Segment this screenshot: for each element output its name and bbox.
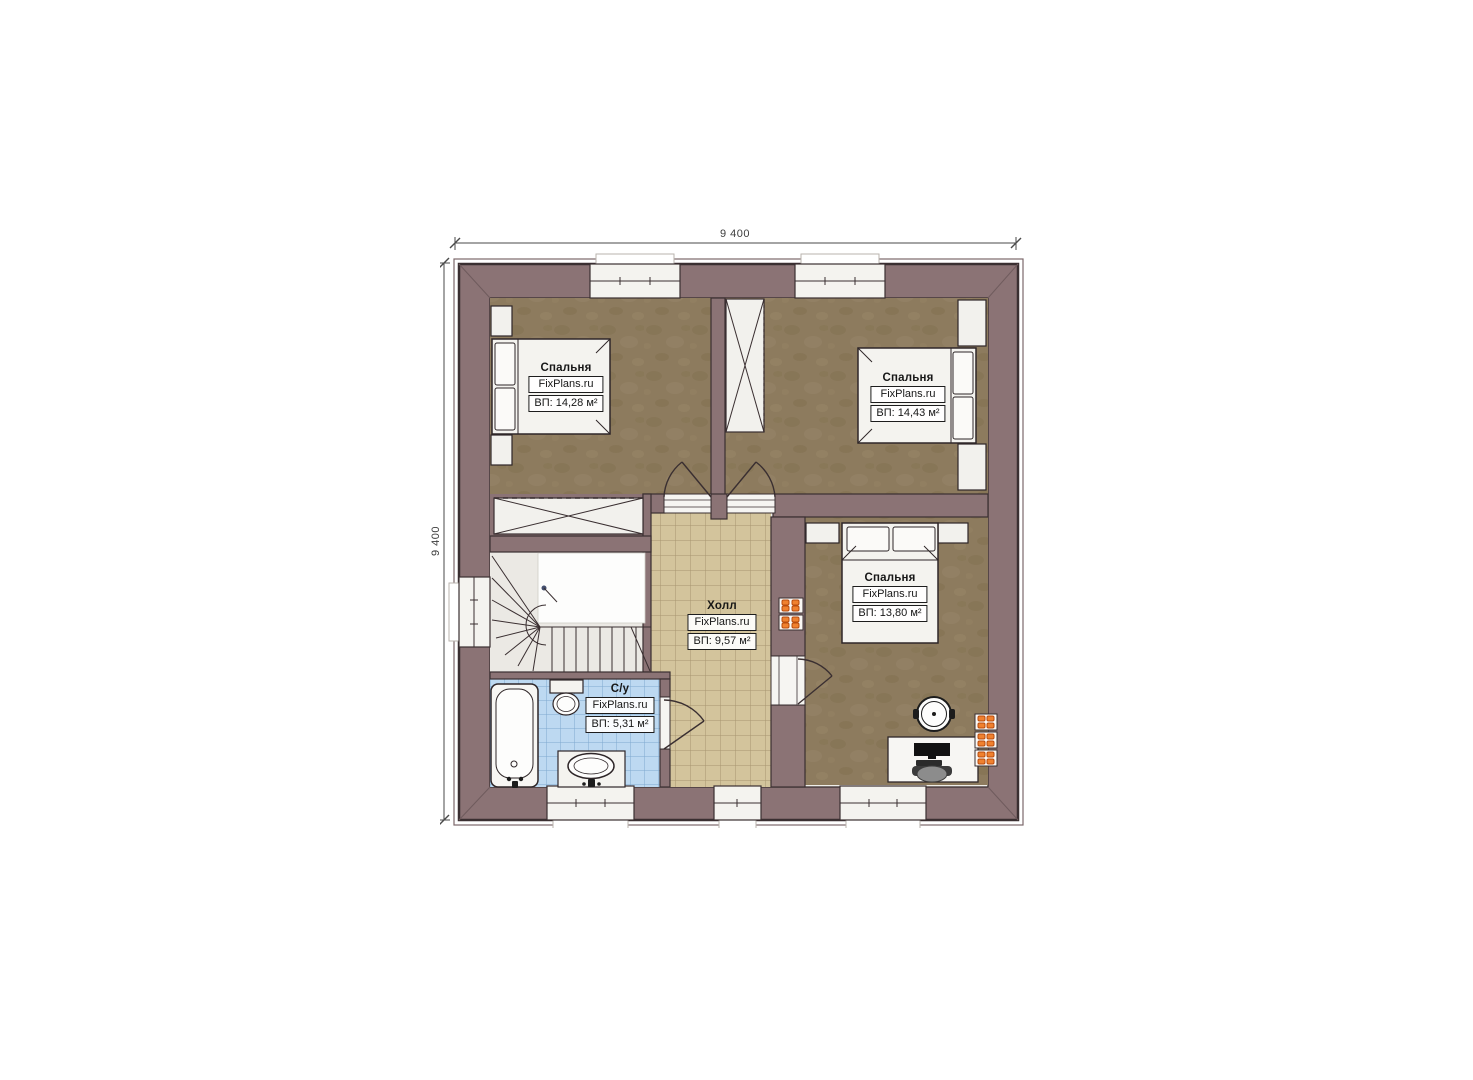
nightstand xyxy=(491,306,512,336)
window-bottom-left xyxy=(547,786,634,828)
dimension-width-label: 9 400 xyxy=(720,228,750,240)
room-label-hall: Холл FixPlans.ru ВП: 9,57 м² xyxy=(687,600,756,650)
room-label-bedroom-bottom-right: Спальня FixPlans.ru ВП: 13,80 м² xyxy=(852,572,927,622)
room-site-watermark: FixPlans.ru xyxy=(528,376,603,393)
pillow xyxy=(847,527,889,551)
room-site-watermark: FixPlans.ru xyxy=(687,614,756,631)
window-bottom-right xyxy=(840,786,926,828)
pillow xyxy=(495,388,515,430)
room-name: Спальня xyxy=(852,572,927,584)
pillow xyxy=(893,527,935,551)
wall-cabinet xyxy=(958,300,986,346)
room-area: ВП: 13,80 м² xyxy=(852,605,927,622)
closet-bedroom-top-left xyxy=(494,498,643,534)
room-name: Холл xyxy=(687,600,756,612)
pillow xyxy=(953,397,973,439)
monitor xyxy=(914,743,950,756)
room-name: Спальня xyxy=(870,372,945,384)
nightstand xyxy=(491,435,512,465)
bathtub xyxy=(491,684,538,788)
nightstand xyxy=(938,523,968,543)
nightstand xyxy=(806,523,839,543)
window-bottom-middle xyxy=(714,786,761,828)
wardrobe-bedroom-top-right xyxy=(726,299,764,432)
room-site-watermark: FixPlans.ru xyxy=(870,386,945,403)
floor-plan-page: 9 400 9 400 Спальня FixPlans.ru ВП: 14,2… xyxy=(0,0,1473,1080)
room-site-watermark: FixPlans.ru xyxy=(585,697,654,714)
room-area: ВП: 5,31 м² xyxy=(585,716,654,733)
room-label-bathroom: С/у FixPlans.ru ВП: 5,31 м² xyxy=(585,683,654,733)
floor-plan-drawing xyxy=(440,228,1040,828)
desk-with-computer xyxy=(888,737,978,782)
room-area: ВП: 14,28 м² xyxy=(528,395,603,412)
room-name: С/у xyxy=(585,683,654,695)
room-label-bedroom-top-left: Спальня FixPlans.ru ВП: 14,28 м² xyxy=(528,362,603,412)
room-name: Спальня xyxy=(528,362,603,374)
keyboard xyxy=(916,760,942,766)
pillow xyxy=(953,352,973,394)
room-site-watermark: FixPlans.ru xyxy=(852,586,927,603)
window-top-right xyxy=(795,254,885,298)
dimension-height-label: 9 400 xyxy=(430,526,442,556)
radiator-right-wall xyxy=(975,714,997,766)
room-area: ВП: 9,57 м² xyxy=(687,633,756,650)
window-left xyxy=(449,577,490,647)
wall-cabinet xyxy=(958,444,986,490)
window-top-left xyxy=(590,254,680,298)
room-label-bedroom-top-right: Спальня FixPlans.ru ВП: 14,43 м² xyxy=(870,372,945,422)
pillow xyxy=(495,343,515,385)
room-area: ВП: 14,43 м² xyxy=(870,405,945,422)
sink xyxy=(558,751,625,787)
